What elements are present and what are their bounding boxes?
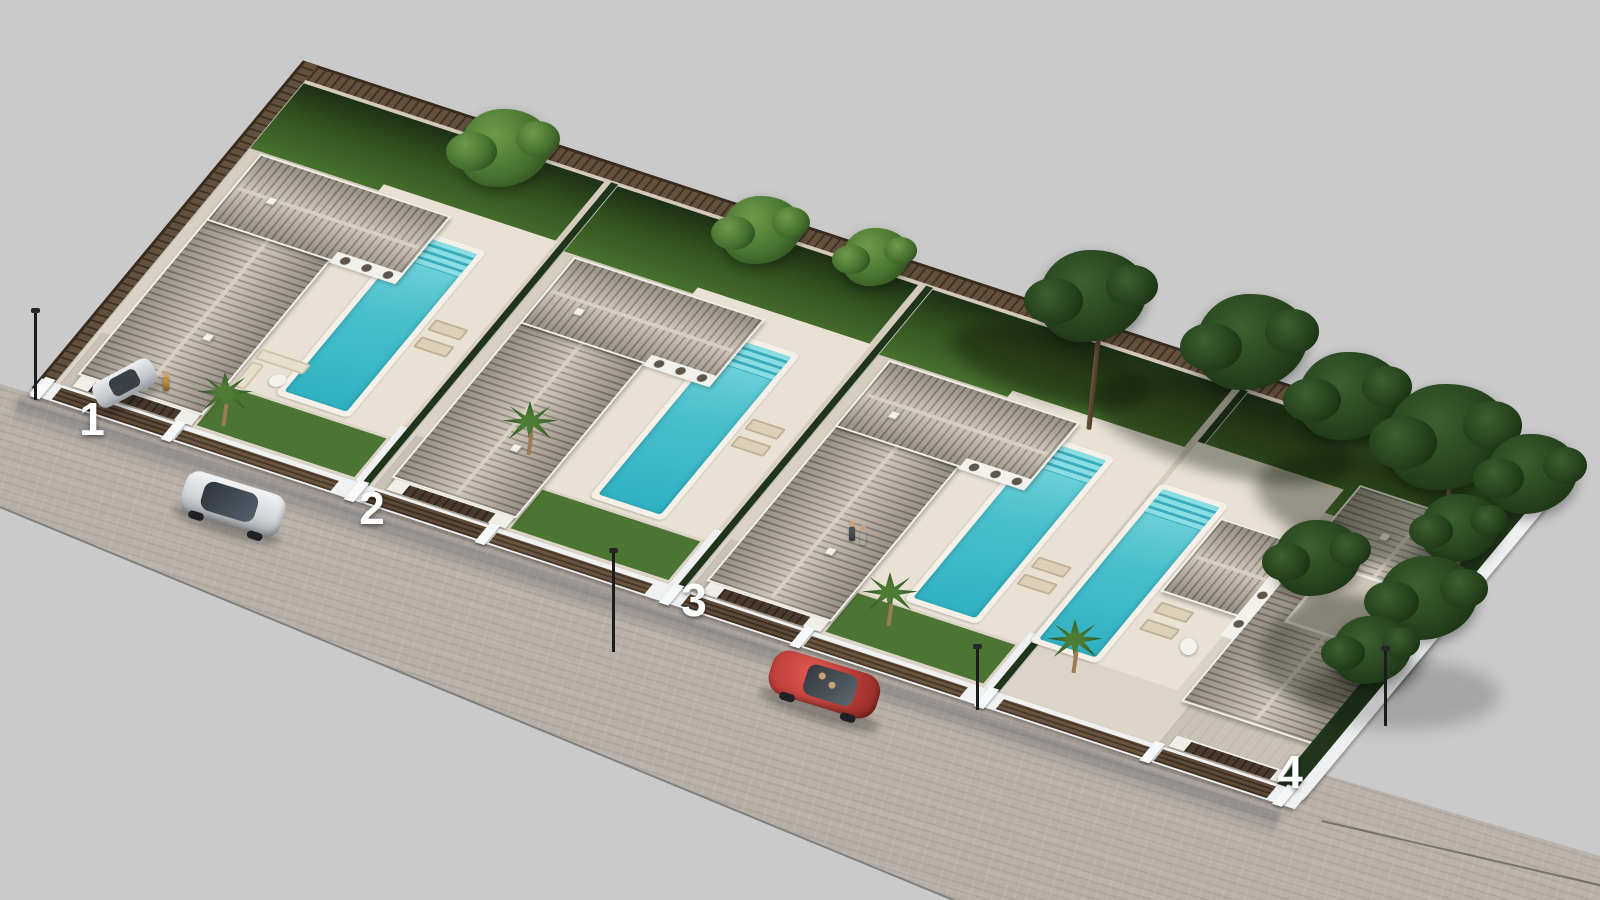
person (860, 530, 866, 545)
plot-number-3: 3 (681, 573, 707, 627)
palm-tree (1047, 619, 1103, 675)
street-lamp (1384, 650, 1387, 726)
person (849, 526, 855, 541)
street-lamp (612, 552, 615, 652)
pine-tree (1196, 294, 1308, 390)
palm-tree (502, 401, 558, 457)
aerial-render: 1 2 3 4 (0, 0, 1600, 900)
palm-trunk (1071, 651, 1078, 673)
street-lamp (34, 312, 37, 400)
pine-tree (1486, 434, 1578, 514)
plot-number-1: 1 (79, 392, 105, 446)
plot-number-2: 2 (359, 481, 385, 535)
palm-trunk (886, 604, 893, 626)
round-table (1180, 638, 1197, 655)
palm-tree (197, 372, 253, 428)
plot-number-4: 4 (1277, 745, 1303, 799)
pine-tree (1039, 250, 1147, 342)
palm-tree (862, 572, 918, 628)
street-lamp (976, 648, 979, 710)
palm-trunk (221, 404, 228, 426)
palm-trunk (526, 433, 533, 455)
person (163, 376, 169, 391)
